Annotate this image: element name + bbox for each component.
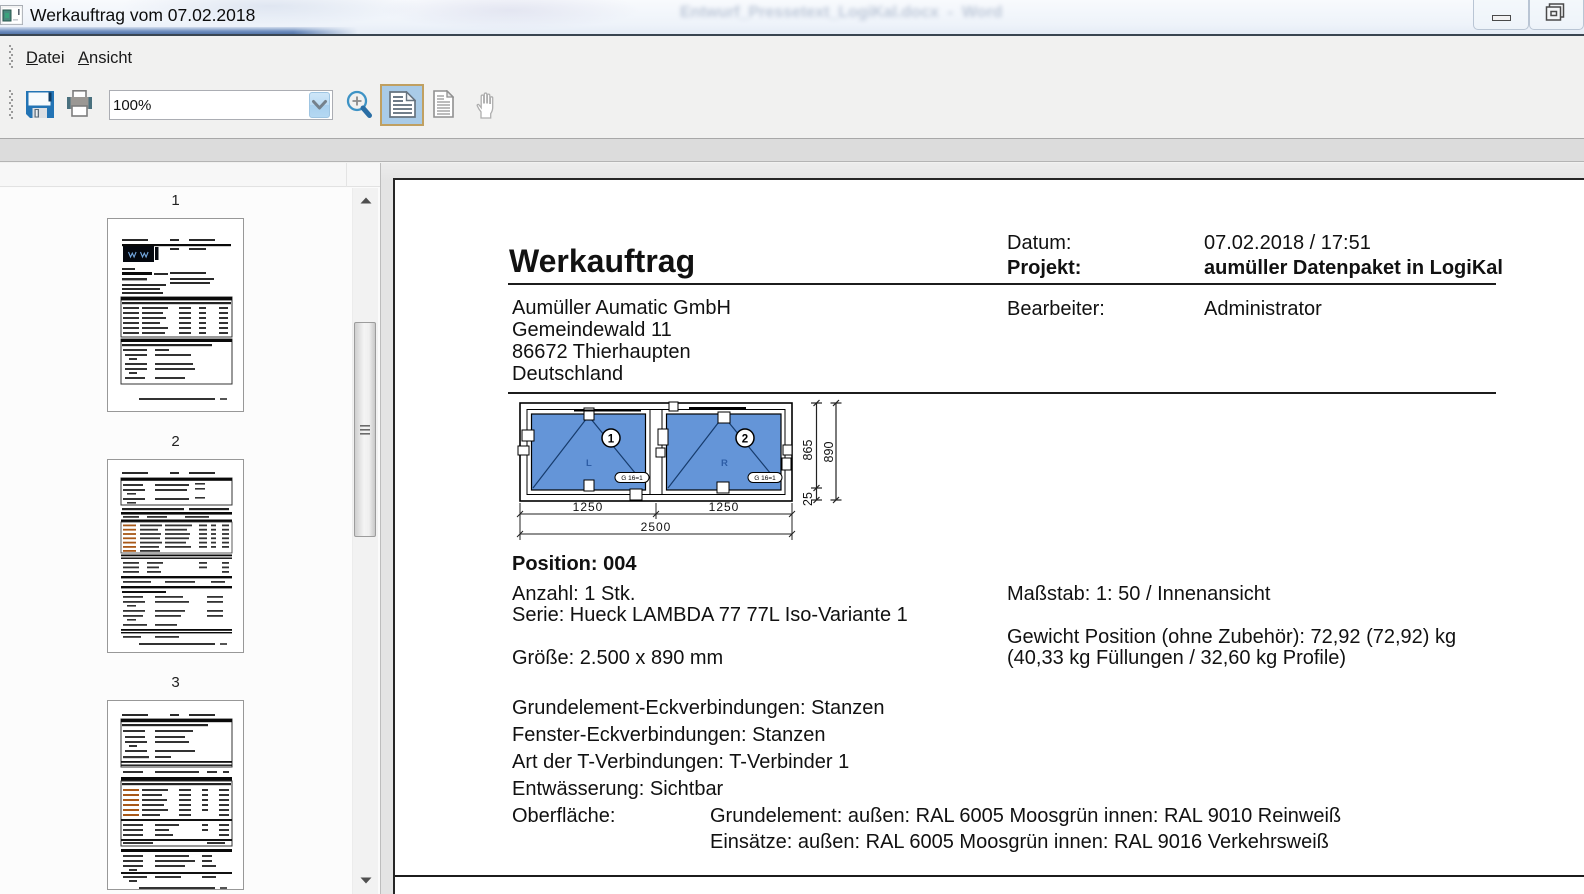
svg-text:L: L <box>586 458 592 469</box>
svg-text:G 16=1: G 16=1 <box>621 475 643 482</box>
svg-text:1250: 1250 <box>709 500 740 514</box>
svg-text:2: 2 <box>742 434 748 446</box>
svg-text:865: 865 <box>801 440 815 461</box>
svg-text:890: 890 <box>822 442 836 463</box>
svg-text:2500: 2500 <box>641 520 672 534</box>
svg-text:G 16=1: G 16=1 <box>754 475 776 482</box>
svg-text:1250: 1250 <box>573 500 604 514</box>
svg-text:R: R <box>721 458 728 469</box>
svg-text:1: 1 <box>608 434 615 446</box>
svg-text:25: 25 <box>801 492 815 506</box>
